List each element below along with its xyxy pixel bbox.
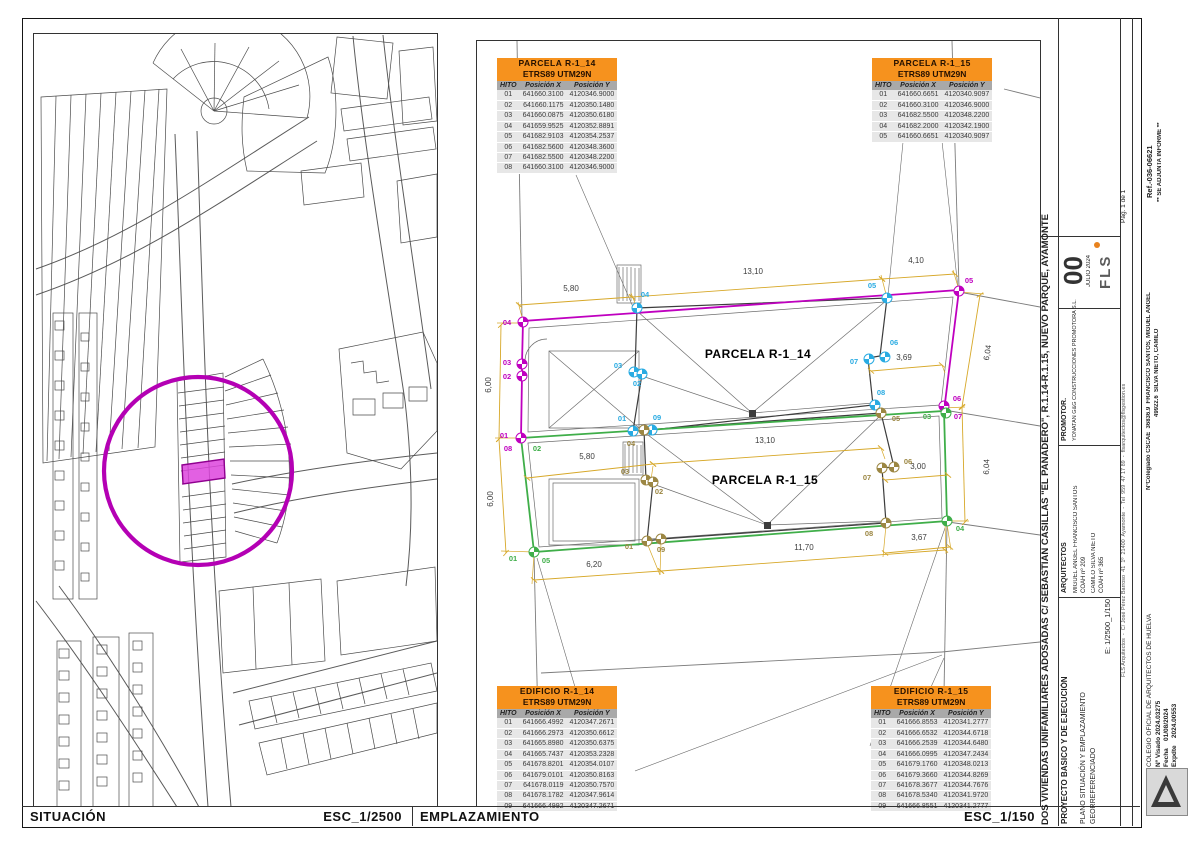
page-number: Pág. 1 de 1	[1121, 180, 1130, 232]
arquitectos-label: ARQUITECTOS	[1061, 447, 1071, 593]
table-row: 03641665.89804120350.6375	[497, 739, 617, 749]
stamp-expdte: Expdte 2024.00553	[1172, 515, 1180, 767]
fls-logo-accent	[1094, 242, 1100, 248]
svg-text:01: 01	[618, 414, 626, 423]
table-row: 03641666.25394120344.6480	[871, 739, 991, 749]
table-row: 04641659.95254120352.8891	[497, 121, 617, 131]
titleblock-divider	[1132, 18, 1133, 826]
map-streets	[36, 35, 437, 806]
arquitecto2-coah: COAH nº 365	[1099, 447, 1107, 593]
table-row: 07641678.36774120344.7676	[871, 781, 991, 791]
promotor-name: YONATAN G&G CONSTRUCCIONES PROMOTORA S.L…	[1073, 310, 1081, 441]
svg-text:08: 08	[865, 529, 873, 538]
table-row: 01641660.31004120346.9000	[497, 90, 617, 100]
svg-text:09: 09	[657, 545, 665, 554]
svg-text:04: 04	[503, 318, 512, 327]
revision-date: JULIO 2024	[1086, 238, 1094, 304]
table-row: 03641682.55004120348.2200	[872, 111, 992, 121]
svg-text:02: 02	[503, 372, 511, 381]
svg-text:06: 06	[904, 457, 912, 466]
emplazamiento-scale: ESC_1/150	[935, 809, 1035, 824]
situacion-panel	[33, 33, 438, 807]
svg-text:6,00: 6,00	[486, 491, 495, 507]
table-parcela-r1-15: PARCELA R-1_15ETRS89 UTM29NHITOPosición …	[872, 58, 992, 143]
svg-text:4,10: 4,10	[908, 256, 924, 265]
svg-text:08: 08	[504, 444, 512, 453]
scale-note: E: 1/2500_1/150	[1104, 599, 1114, 824]
svg-text:06: 06	[953, 394, 961, 403]
table-header: HITOPosición XPosición Y	[872, 81, 992, 90]
table-row: 06641679.01014120350.8163	[497, 770, 617, 780]
titleblock-divider	[1058, 308, 1120, 309]
arquitecto1: MIGUEL ANGEL FRANCISCO SANTOS	[1073, 447, 1081, 593]
table-subtitle: ETRS89 UTM29N	[872, 69, 992, 80]
arquitecto1-coah: COAH nº 209	[1081, 447, 1089, 593]
colegio-arquitectos-logo	[1146, 768, 1188, 816]
table-row: 07641678.01194120350.7570	[497, 781, 617, 791]
table-row: 01641666.49924120347.2671	[497, 718, 617, 728]
svg-text:02: 02	[533, 444, 541, 453]
svg-text:05: 05	[965, 276, 973, 285]
table-edificio-r1-15: EDIFICIO R-1_15ETRS89 UTM29NHITOPosición…	[871, 686, 991, 812]
promotor-label: PROMOTOR.	[1061, 310, 1071, 441]
table-row: 02641660.11754120350.1480	[497, 100, 617, 110]
svg-text:03: 03	[621, 467, 629, 476]
colegiado-line2: 49922.6 SILVA NIETO, CAMILO	[1154, 255, 1162, 490]
svg-text:13,10: 13,10	[743, 267, 764, 276]
svg-text:01: 01	[500, 431, 508, 440]
stamp-ref: Ref.-036-06621	[1146, 80, 1155, 198]
fls-logo: FLS	[1098, 244, 1118, 300]
svg-text:04: 04	[641, 290, 650, 299]
svg-text:3,67: 3,67	[911, 533, 927, 542]
phase-title: PROYECTO BASICO Y DE EJECUCIÓN	[1061, 599, 1072, 824]
coordinate-table: PARCELA R-1_15ETRS89 UTM29NHITOPosición …	[872, 58, 992, 143]
svg-text:5,80: 5,80	[579, 452, 595, 461]
arquitecto2: CAMILO SILVA NIETO	[1091, 447, 1099, 593]
table-row: 08641660.31004120346.9000	[497, 163, 617, 173]
table-row: 02641660.31004120346.9000	[872, 100, 992, 110]
table-subtitle: ETRS89 UTM29N	[497, 69, 617, 80]
svg-text:03: 03	[503, 358, 511, 367]
svg-text:04: 04	[956, 524, 965, 533]
table-row: 06641682.56004120348.3600	[497, 142, 617, 152]
svg-text:05: 05	[542, 556, 550, 565]
table-edificio-r1-14: EDIFICIO R-1_14ETRS89 UTM29NHITOPosición…	[497, 686, 617, 812]
svg-text:09: 09	[653, 413, 661, 422]
table-subtitle: ETRS89 UTM29N	[871, 697, 991, 708]
svg-text:3,00: 3,00	[910, 462, 926, 471]
stamp-informe: ** SE ADJUNTA INFORME **	[1157, 78, 1165, 202]
table-row: 08641678.17824120347.9614	[497, 791, 617, 801]
table-row: 08641678.53404120341.9720	[871, 791, 991, 801]
table-row: 05641682.91034120354.2537	[497, 132, 617, 142]
table-row: 04641666.09954120347.2434	[871, 749, 991, 759]
table-row: 02641666.65324120344.6718	[871, 728, 991, 738]
svg-text:01: 01	[509, 554, 517, 563]
svg-text:07: 07	[863, 473, 871, 482]
table-title: PARCELA R-1_14	[497, 58, 617, 69]
svg-text:05: 05	[868, 281, 876, 290]
svg-text:6,00: 6,00	[484, 377, 493, 393]
coordinate-table: EDIFICIO R-1_14ETRS89 UTM29NHITOPosición…	[497, 686, 617, 812]
table-row: 05641660.66514120340.9097	[872, 132, 992, 142]
svg-text:07: 07	[954, 412, 962, 421]
table-row: 02641666.29734120350.6612	[497, 728, 617, 738]
footer-divider	[412, 806, 413, 826]
table-header: HITOPosición XPosición Y	[497, 709, 617, 718]
site-highlight-parcel	[182, 459, 225, 484]
table-row: 04641682.20004120342.1900	[872, 121, 992, 131]
svg-text:05: 05	[892, 414, 900, 423]
svg-text:01: 01	[625, 542, 633, 551]
situacion-scale: ESC_1/2500	[302, 809, 402, 824]
svg-text:6,20: 6,20	[586, 560, 602, 569]
table-header: HITOPosición XPosición Y	[497, 81, 617, 90]
svg-text:07: 07	[850, 357, 858, 366]
svg-text:03: 03	[923, 412, 931, 421]
svg-text:11,70: 11,70	[794, 543, 814, 552]
table-row: 01641666.85534120341.2777	[871, 718, 991, 728]
titleblock-divider	[1058, 445, 1120, 446]
svg-text:08: 08	[877, 388, 885, 397]
table-row: 03641660.08754120350.6180	[497, 111, 617, 121]
svg-text:02: 02	[655, 487, 663, 496]
table-subtitle: ETRS89 UTM29N	[497, 697, 617, 708]
table-title: EDIFICIO R-1_14	[497, 686, 617, 697]
svg-text:PARCELA R-1_14: PARCELA R-1_14	[705, 347, 811, 361]
svg-text:6,04: 6,04	[982, 344, 993, 361]
emplazamiento-label: EMPLAZAMIENTO	[420, 809, 540, 824]
plan-sheet: 5,8013,104,106,006,006,046,043,6913,105,…	[0, 0, 1200, 849]
svg-text:6,04: 6,04	[982, 458, 992, 474]
table-row: 01641660.66514120340.9097	[872, 90, 992, 100]
situacion-map	[34, 34, 437, 806]
table-header: HITOPosición XPosición Y	[871, 709, 991, 718]
table-row: 06641679.36604120344.8269	[871, 770, 991, 780]
titleblock-divider	[1058, 597, 1120, 598]
firm-address-line: FLS Arquitectos - C/ José Pérez Barroso …	[1122, 236, 1130, 825]
colegiado-line1: NºColegiado CSCAE 36836.9 FRANCISCO SANT…	[1146, 255, 1154, 490]
table-title: PARCELA R-1_15	[872, 58, 992, 69]
svg-text:03: 03	[614, 361, 622, 370]
svg-text:04: 04	[627, 439, 636, 448]
table-row: 05641679.17604120348.0213	[871, 760, 991, 770]
plano-line2: GEORREFERENCIADO	[1090, 599, 1099, 824]
table-title: EDIFICIO R-1_15	[871, 686, 991, 697]
svg-text:06: 06	[890, 338, 898, 347]
stamp-colegio: COLEGIO OFICIAL DE ARQUITECTOS DE HUELVA	[1147, 515, 1155, 767]
svg-text:5,80: 5,80	[563, 284, 579, 293]
plano-line1: PLANO SITUACIÓN Y EMPLAZAMIENTO	[1080, 599, 1089, 824]
situacion-label: SITUACIÓN	[30, 809, 106, 824]
svg-text:02: 02	[633, 379, 641, 388]
table-row: 04641665.74374120353.2328	[497, 749, 617, 759]
svg-text:3,69: 3,69	[896, 353, 912, 362]
svg-text:13,10: 13,10	[755, 436, 776, 445]
table-parcela-r1-14: PARCELA R-1_14ETRS89 UTM29NHITOPosición …	[497, 58, 617, 174]
titleblock-divider	[1058, 18, 1059, 826]
svg-text:PARCELA R-1_15: PARCELA R-1_15	[712, 473, 818, 487]
project-title: DOS VIVIENDAS UNIFAMILIARES ADOSADAS C/ …	[1041, 236, 1058, 825]
table-row: 05641678.82014120354.0107	[497, 760, 617, 770]
coordinate-table: EDIFICIO R-1_15ETRS89 UTM29NHITOPosición…	[871, 686, 991, 812]
coordinate-table: PARCELA R-1_14ETRS89 UTM29NHITOPosición …	[497, 58, 617, 174]
table-row: 07641682.55004120348.2200	[497, 153, 617, 163]
